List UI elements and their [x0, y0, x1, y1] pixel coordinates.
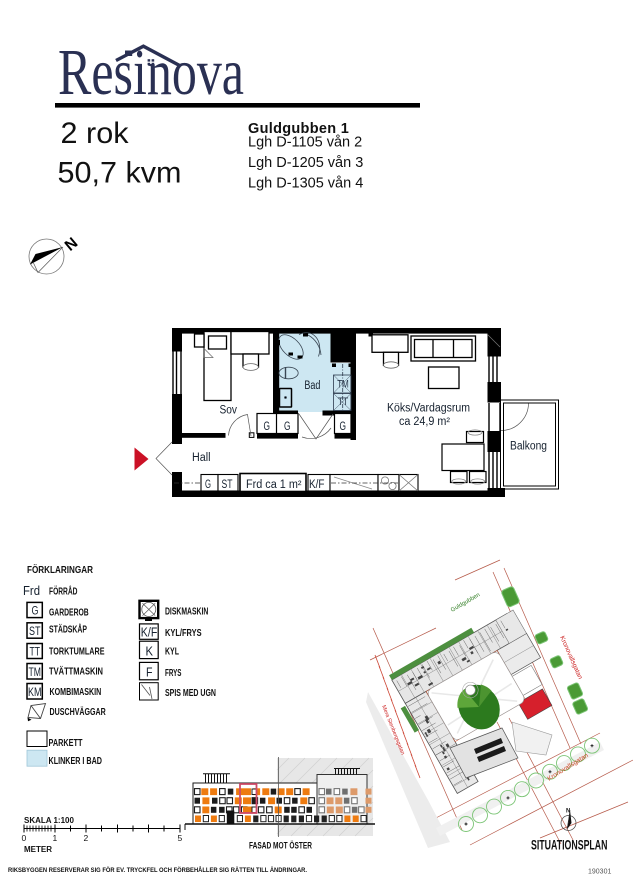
svg-text:TM: TM	[29, 667, 42, 679]
svg-text:G: G	[205, 479, 211, 491]
svg-text:K/F: K/F	[309, 479, 325, 491]
svg-text:ca 24,9 m²: ca 24,9 m²	[399, 416, 450, 428]
svg-text:Guldgubben: Guldgubben	[450, 592, 481, 614]
svg-text:ST: ST	[222, 479, 233, 491]
svg-text:TORKTUMLARE: TORKTUMLARE	[49, 646, 105, 657]
svg-text:TVÄTTMASKIN: TVÄTTMASKIN	[49, 665, 103, 678]
svg-text:PARKETT: PARKETT	[49, 738, 83, 749]
svg-text:G: G	[284, 419, 291, 433]
svg-text:ST: ST	[29, 626, 41, 638]
svg-text:DUSCHVÄGGAR: DUSCHVÄGGAR	[50, 705, 107, 718]
svg-text:FÖRRÅD: FÖRRÅD	[49, 585, 78, 598]
svg-text:DISKMASKIN: DISKMASKIN	[165, 606, 208, 617]
svg-text:190301: 190301	[588, 869, 611, 876]
svg-text:TT: TT	[338, 396, 349, 408]
svg-text:FRYS: FRYS	[165, 668, 182, 679]
svg-text:STÄDSKÅP: STÄDSKÅP	[49, 623, 87, 636]
svg-text:0: 0	[22, 833, 27, 843]
svg-text:FASAD MOT ÖSTER: FASAD MOT ÖSTER	[249, 840, 312, 851]
svg-text:5: 5	[178, 833, 183, 843]
svg-text:Lgh D-1305 vån 4: Lgh D-1305 vån 4	[248, 176, 363, 192]
svg-text:Lgh D-1205 vån 3: Lgh D-1205 vån 3	[248, 155, 363, 171]
svg-text:TM: TM	[337, 379, 349, 391]
svg-text:Sov: Sov	[220, 405, 238, 417]
svg-text:Bad: Bad	[304, 380, 320, 392]
svg-text:N: N	[566, 809, 570, 815]
svg-text:Frd: Frd	[23, 583, 40, 598]
svg-text:1: 1	[53, 833, 58, 843]
svg-text:G: G	[264, 419, 271, 433]
svg-text:2 rok: 2 rok	[61, 117, 130, 150]
svg-text:SITUATIONSPLAN: SITUATIONSPLAN	[531, 838, 608, 853]
svg-text:F: F	[146, 666, 153, 680]
svg-text:KOMBIMASKIN: KOMBIMASKIN	[50, 687, 102, 698]
svg-text:KYL/FRYS: KYL/FRYS	[165, 628, 202, 639]
svg-text:50,7 kvm: 50,7 kvm	[58, 157, 182, 190]
svg-text:SPIS MED UGN: SPIS MED UGN	[165, 688, 216, 699]
svg-text:Balkong: Balkong	[510, 441, 547, 453]
svg-text:KM: KM	[28, 687, 42, 699]
svg-text:KLINKER I BAD: KLINKER I BAD	[49, 756, 103, 767]
svg-text:K: K	[146, 645, 154, 659]
svg-text:2: 2	[84, 833, 89, 843]
svg-text:N: N	[62, 234, 82, 254]
svg-text:K/F: K/F	[141, 626, 158, 640]
svg-text:FÖRKLARINGAR: FÖRKLARINGAR	[27, 563, 93, 576]
svg-text:Frd ca 1 m²: Frd ca 1 m²	[246, 479, 302, 491]
svg-text:Köks/Vardagsrum: Köks/Vardagsrum	[387, 403, 470, 415]
svg-text:SKALA 1:100: SKALA 1:100	[24, 816, 74, 825]
svg-text:RIKSBYGGEN RESERVERAR SIG FÖR: RIKSBYGGEN RESERVERAR SIG FÖR EV. TRYCKF…	[8, 865, 307, 874]
svg-text:TT: TT	[30, 646, 41, 658]
svg-text:Kronovallsgatan: Kronovallsgatan	[558, 635, 584, 681]
svg-text:Lgh D-1105 vån 2: Lgh D-1105 vån 2	[248, 135, 362, 151]
svg-text:G: G	[32, 606, 39, 618]
svg-text:METER: METER	[24, 845, 52, 854]
svg-text:GARDEROB: GARDEROB	[49, 607, 89, 618]
svg-text:Resinova: Resinova	[58, 36, 244, 109]
svg-text:KYL: KYL	[165, 647, 179, 658]
svg-text:Hall: Hall	[192, 452, 211, 464]
svg-text:G: G	[340, 419, 347, 433]
